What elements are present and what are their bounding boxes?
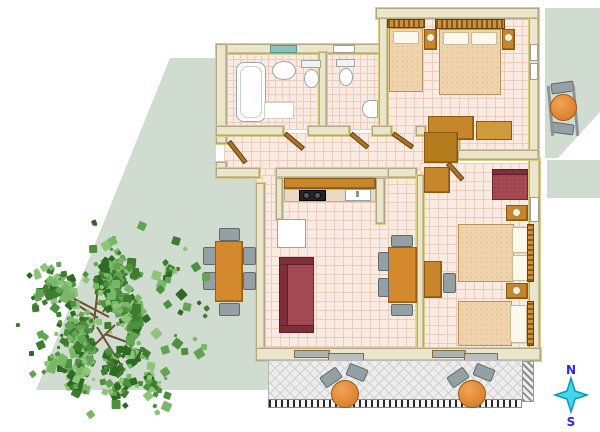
kitchen-upper-cabinet xyxy=(284,178,376,189)
tree-leaf xyxy=(162,300,172,310)
lamp-left xyxy=(426,33,435,42)
tree-leaf xyxy=(112,400,121,409)
wall-wc-bedroom-divider xyxy=(379,18,388,128)
wc-toilet-bowl xyxy=(339,68,353,86)
single-bed-south-pillow xyxy=(510,305,527,343)
tree-leaf xyxy=(56,262,62,268)
tree-leaf xyxy=(181,348,189,356)
wall-bath-top xyxy=(216,44,392,54)
sofa-back xyxy=(279,257,288,333)
tree-leaf xyxy=(160,345,170,355)
tree-leaf xyxy=(156,388,162,394)
single-bed-south-headboard xyxy=(527,301,534,346)
tree-leaf xyxy=(178,310,185,317)
wall-kitchen-right xyxy=(376,178,385,224)
tree xyxy=(10,216,220,426)
wall-kitchen-top-east xyxy=(388,168,417,178)
wall-bedrooms-divider xyxy=(458,150,539,160)
kitchen-sink-faucet xyxy=(356,191,359,197)
living-sliding-door-glass-a xyxy=(294,350,330,358)
tree-leaf xyxy=(190,261,201,272)
tree-leaf xyxy=(34,293,42,301)
bedroom-north-side-cabinet xyxy=(476,121,512,140)
lamp-south-a xyxy=(512,208,521,217)
tree-leaf xyxy=(33,271,42,280)
wall-bath-bottom-b xyxy=(308,126,350,136)
tree-leaf xyxy=(159,366,170,377)
bedroom-south-wardrobe xyxy=(424,167,450,193)
tree-leaf xyxy=(196,301,202,307)
tree-leaf xyxy=(182,302,192,312)
wall-kitchen-left xyxy=(276,178,283,220)
tree-leaf xyxy=(175,288,188,301)
tree-leaf xyxy=(29,351,34,356)
tree-leaf xyxy=(202,273,210,281)
double-bed-pillow-right xyxy=(471,32,497,45)
tree-leaf xyxy=(103,322,111,330)
tree-leaf xyxy=(154,409,160,415)
tree-leaf xyxy=(137,221,147,231)
dining-chair-left-a xyxy=(378,252,389,271)
tree-leaf xyxy=(41,369,46,374)
tree-leaf xyxy=(137,341,141,345)
tree-leaf xyxy=(135,384,139,388)
double-bed-pillow-left xyxy=(443,32,469,45)
fridge xyxy=(277,219,306,248)
compass-south-label: S xyxy=(567,415,576,428)
single-bed-pillow xyxy=(393,31,419,44)
tree-leaf xyxy=(192,336,197,341)
tree-leaf xyxy=(32,305,40,313)
sofa-arm-top xyxy=(279,257,314,265)
dining-chair-top xyxy=(391,235,413,247)
wc-window xyxy=(333,45,355,53)
tree-leaf xyxy=(122,402,129,409)
tree-leaf xyxy=(161,401,173,413)
tree-leaf xyxy=(56,346,60,350)
tree-leaf xyxy=(158,380,162,384)
double-bed-south-headboard xyxy=(527,224,534,282)
tree-leaf xyxy=(142,391,154,403)
tree-leaf xyxy=(54,332,59,337)
tree-leaf xyxy=(55,311,61,317)
bath-mat xyxy=(264,102,294,119)
single-bed-headboard xyxy=(387,19,425,28)
tree-leaf xyxy=(203,305,211,313)
double-bed-south xyxy=(458,224,514,282)
dining-chair-left-b xyxy=(378,278,389,297)
tree-leaf xyxy=(85,410,95,420)
garden-chair-top xyxy=(219,228,240,241)
tree-leaf xyxy=(163,391,171,399)
double-bed-south-pillow-b xyxy=(512,255,528,281)
tree-leaf xyxy=(95,319,102,326)
tree-leaf xyxy=(150,270,161,281)
wall-bedroom-north-right xyxy=(529,18,539,158)
tree-leaf xyxy=(132,321,140,329)
tree-leaf xyxy=(122,347,131,356)
compass-star-icon xyxy=(555,378,587,412)
wc-corner-washbasin xyxy=(362,100,378,118)
bathroom-window xyxy=(270,45,297,53)
wall-bath-bottom-c xyxy=(372,126,392,136)
bathroom-washbasin xyxy=(272,61,296,80)
tree-leaf xyxy=(36,340,46,350)
tree-leaf xyxy=(115,322,120,327)
tree-leaf xyxy=(153,403,158,408)
floor-plan: N S xyxy=(0,0,600,432)
tree-leaf xyxy=(202,313,208,319)
tree-leaf xyxy=(150,327,162,339)
tree-leaf xyxy=(115,290,121,296)
lamp-right xyxy=(504,33,513,42)
wall-kitchen-top xyxy=(276,168,392,178)
tree-leaf xyxy=(182,246,188,252)
bedroom-south-window xyxy=(530,197,539,222)
wall-bedroom-north-top xyxy=(376,8,539,19)
tree-leaf xyxy=(146,374,152,380)
sofa-arm-bottom xyxy=(279,325,314,333)
compass-rose: N S xyxy=(549,360,593,428)
tree-leaf xyxy=(98,290,103,295)
stove-burner-left xyxy=(303,192,310,199)
tree-leaf xyxy=(132,304,141,313)
tree-leaf xyxy=(146,361,155,370)
compass-north-label: N xyxy=(566,363,576,377)
balcony-round-table-east xyxy=(458,380,486,408)
tree-leaf xyxy=(112,280,120,288)
tree-leaf xyxy=(61,270,68,277)
tree-leaf xyxy=(26,272,33,279)
tree-leaf xyxy=(171,236,181,246)
bathroom-toilet-bowl xyxy=(304,69,319,88)
east-balcony-round-table xyxy=(550,94,577,121)
tree-leaf xyxy=(89,245,97,253)
bathtub-basin xyxy=(240,66,262,118)
garden-chair-right-b xyxy=(243,272,256,290)
tree-leaf xyxy=(73,383,78,388)
wall-living-bedroom-divider xyxy=(417,175,424,350)
tree-leaf xyxy=(123,307,128,312)
balcony-round-table-west xyxy=(331,380,359,408)
tree-leaf xyxy=(93,223,97,227)
wall-living-left xyxy=(256,183,265,350)
tree-leaf xyxy=(16,323,20,327)
garden-east-mid-area xyxy=(547,160,600,198)
double-bed-south-pillow-a xyxy=(512,227,528,253)
balcony-south-right-edge xyxy=(522,361,534,402)
tree-leaf xyxy=(92,378,96,382)
tree-leaf xyxy=(29,369,37,377)
dining-chair-bottom xyxy=(391,304,413,316)
stove-burner-right xyxy=(314,192,321,199)
tree-leaf xyxy=(108,236,118,246)
garden-chair-bottom xyxy=(219,303,240,316)
bedroom-north-window-b xyxy=(530,63,538,80)
wall-bath-bottom-a xyxy=(216,126,284,136)
bedroom-south-desk xyxy=(424,261,442,298)
tree-leaf xyxy=(126,336,135,345)
red-armchair-back xyxy=(492,169,528,175)
bedroom-north-window-a xyxy=(530,44,538,61)
tree-leaf xyxy=(165,277,172,284)
hallway-wardrobe xyxy=(424,132,458,163)
wall-hall-bottom xyxy=(216,168,260,178)
dining-table xyxy=(388,247,417,303)
bedroom-south-desk-chair xyxy=(443,273,456,293)
bathroom-toilet-tank xyxy=(301,60,321,68)
bedroom-south-sliding-door-glass-a xyxy=(432,350,466,358)
tree-leaf xyxy=(88,327,94,333)
double-bed-headboard xyxy=(435,19,505,29)
garden-chair-right-a xyxy=(243,247,256,265)
lamp-south-b xyxy=(512,286,521,295)
single-bed-south xyxy=(458,301,512,346)
wc-toilet-tank xyxy=(336,59,355,67)
tree-leaf xyxy=(92,282,99,289)
